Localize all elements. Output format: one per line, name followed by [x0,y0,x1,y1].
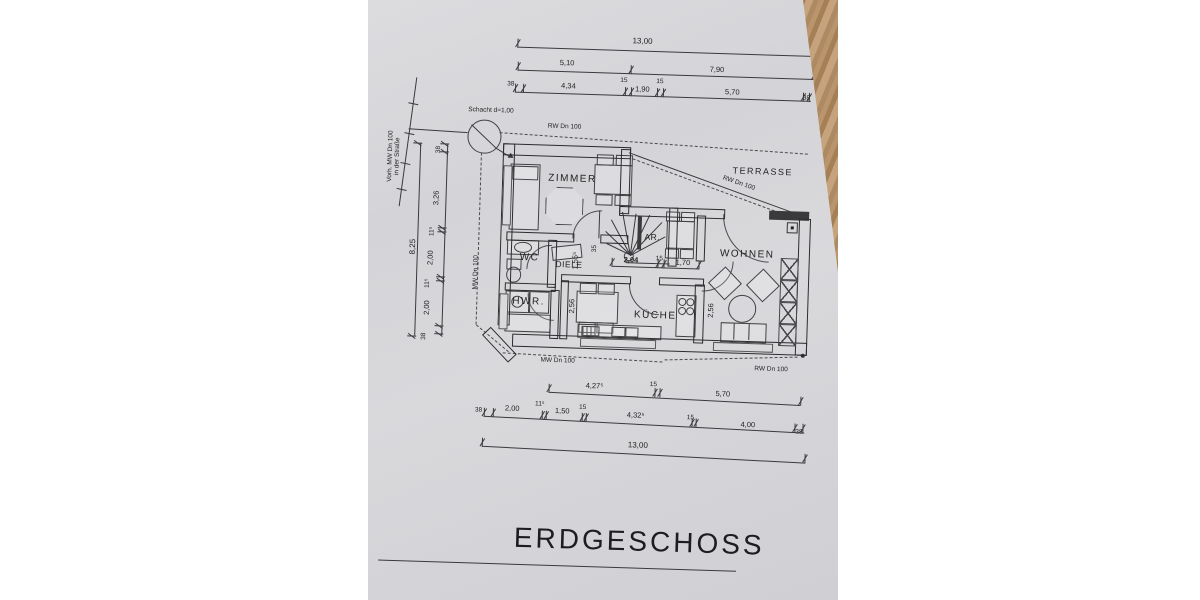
kitchen-table [576,291,619,324]
shelf-cell [779,280,798,303]
dim-bottom-detail-1: 2,00 [505,403,520,412]
sink-basin [611,327,625,337]
tick [804,454,805,463]
wall-zimmer-east [619,149,631,214]
dim-bottom-detail-0: 38 [475,406,482,413]
dim-left-detail-2: 11⁵ [428,226,435,236]
bed-pillow [512,166,538,181]
dim-bottom-detail-4: 15 [579,404,586,411]
dim-bottom-detail-2: 11⁵ [535,400,545,407]
wall-kueche-north-a [561,274,631,284]
dim-bottom-mid-0: 4,27⁵ [586,381,604,391]
dim-left-detail-5: 2,00 [422,300,431,315]
dim-top-total: 13,00 [632,36,652,46]
dim-line-top-total [517,47,816,57]
mw-pipe-left [476,153,482,325]
tick [800,397,801,406]
dim-bottom-mid-1: 15 [650,381,657,388]
chair [598,283,615,295]
chair [580,283,597,295]
tick [437,231,446,232]
street-sewer-label: Vorh. MW Dn 100 in der Straße [386,130,402,182]
tick [815,48,816,57]
dim-left-detail-3: 2,00 [425,250,434,265]
dim-bottom-detail-3: 1,50 [555,406,570,415]
dim-line-left-detail [441,143,448,335]
dim-left-detail-4: 11⁵ [424,278,431,288]
dim-top-mid-1: 7,90 [710,65,725,74]
screenshot: 13,00 5,10 7,90 38 4,34 15 1,90 [0,0,1200,600]
dim-kitchen-depth-left: 2,56 [567,299,576,314]
room-label-wc: WC [520,252,540,264]
tick [698,260,699,269]
street-connection-line [409,128,468,133]
floor-plan-drawing: 13,00 5,10 7,90 38 4,34 15 1,90 [357,0,846,600]
shelf-cell [779,302,798,325]
mw-bottom-label: MW Dn 100 [540,357,575,365]
street-line-tick [400,162,410,165]
dim-top-detail-5: 5,70 [725,87,740,96]
wall-wohnen-west [696,215,706,261]
tick [434,333,443,334]
mw-pipe-bottom [503,352,663,362]
terrace-edge-line [629,152,797,214]
wall-outer-top [503,143,631,159]
dim-bottom-detail-6: 15 [687,414,694,421]
dim-bottom-detail-8: 38 [795,429,802,436]
dim-top-detail-6: 38 [803,95,810,102]
tick [434,325,443,326]
dim-bottom-total: 13,00 [628,440,648,450]
room-label-ar: AR. [644,232,660,242]
page-title: ERDGESCHOSS [513,522,765,562]
dim-wall: 35 [591,245,598,252]
wall-hwr-east [549,290,560,339]
dim-kitchen-c: 1,70 [675,258,690,267]
corner-marker [787,222,798,233]
window-wohnen [713,342,773,353]
wall-kueche-west [559,280,569,339]
wall-stairs-east [667,207,678,266]
schacht-label: Schacht d=1,00 [468,106,514,114]
dim-kitchen-a: 2,04 [624,255,639,264]
tick [813,71,814,80]
tick [440,143,449,144]
dishwasher [581,326,599,337]
dim-top-detail-2: 15 [620,77,627,84]
rw-top-label: RW Dn 100 [548,123,582,131]
dim-top-detail-3: 1,90 [635,84,650,93]
corner-marker-dot [791,226,794,229]
mw-left-label: MW Dn 100 [472,255,480,290]
tick [654,388,655,397]
dim-kitchen-depth-right: 2,56 [706,303,715,318]
dim-line-top-mid [518,70,815,80]
shelf-cell [778,324,797,347]
hwr-counter [504,313,551,332]
wall-wc-east [547,240,558,288]
street-label-line2: in der Straße [393,137,401,175]
dim-left-detail-6: 38 [420,332,427,339]
wall-zimmer-south-b [600,234,628,244]
chair [595,194,612,206]
wall-kueche-east [693,284,705,343]
dim-left-detail-1: 3,26 [431,190,440,205]
coffee-table [728,294,757,323]
title-underline [378,560,736,572]
dim-bottom-detail-5: 4,32⁵ [627,410,645,420]
dim-top-detail-1: 4,34 [561,81,576,90]
room-label-terrasse: TERRASSE [732,165,793,177]
dim-top-mid-0: 5,10 [560,58,575,67]
scanned-floor-plan-paper: 13,00 5,10 7,90 38 4,34 15 1,90 [368,0,838,600]
rw-bottom-label: RW Dn 100 [754,365,788,373]
dim-left-total: 8,25 [408,239,417,255]
shelf-cell [780,258,799,281]
dim-bottom-mid-2: 5,70 [715,389,730,398]
wood-table-background: 13,00 5,10 7,90 38 4,34 15 1,90 [368,0,838,600]
wall-wc-south [505,282,556,292]
room-label-hwr: HWR. [512,296,545,308]
dim-bottom-detail-7: 4,00 [740,420,755,429]
sink-basin [625,327,638,337]
shelving-unit [778,258,799,347]
window-zimmer [502,165,513,225]
tick [659,388,660,397]
dim-top-detail-0: 38 [507,80,514,87]
tick [413,142,422,143]
rw-pipe-bottom [665,357,798,361]
tick [436,280,445,281]
dim-left-detail-0: 38 [435,146,442,153]
window-hwr [498,293,508,329]
dim-top-detail-4: 15 [656,78,663,85]
room-label-wohnen: WOHNEN [720,248,775,261]
room-label-zimmer: ZIMMER [548,173,597,186]
tick [407,335,416,336]
dim-hall: 1,55⁵ [570,252,580,270]
room-label-kueche: KÜCHE [634,309,677,321]
dim-kitchen-b: 15 [656,255,663,262]
